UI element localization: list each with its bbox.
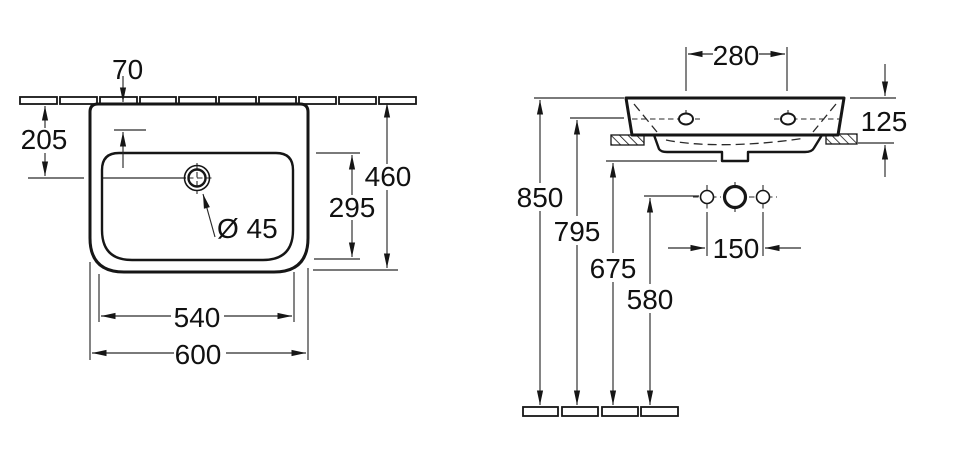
front-view: 70 205 460 295 [20, 54, 416, 370]
drawing-canvas: 70 205 460 295 [0, 0, 960, 459]
dim-apron-height: 125 [850, 64, 907, 177]
dim-top-to-tap-center: 205 [21, 106, 84, 178]
basin-side-outline [626, 98, 844, 135]
dim-label-150: 150 [713, 233, 760, 264]
dim-overall-height: 460 [313, 103, 411, 270]
dim-label-795: 795 [554, 216, 601, 247]
dim-supply-height: 580 [627, 198, 674, 405]
dim-rim-height: 850 [517, 100, 564, 405]
dim-supply-spacing: 150 [668, 212, 801, 264]
dim-label-125: 125 [861, 106, 908, 137]
dim-bowl-width: 540 [99, 272, 294, 333]
dim-label-600: 600 [175, 339, 222, 370]
dim-label-460: 460 [365, 161, 412, 192]
connection-holes [693, 182, 777, 212]
dim-fixing-spacing: 280 [686, 40, 787, 91]
dim-label-295: 295 [329, 192, 376, 223]
dim-label-280: 280 [713, 40, 760, 71]
dim-label-d45: Ø 45 [217, 213, 278, 244]
side-view: 280 125 850 795 675 580 [517, 40, 908, 416]
technical-drawing: 70 205 460 295 [0, 0, 960, 459]
floor-tile-strip [523, 407, 678, 416]
dim-label-675: 675 [590, 253, 637, 284]
dim-label-540: 540 [174, 302, 221, 333]
dim-label-850: 850 [517, 182, 564, 213]
dim-label-580: 580 [627, 284, 674, 315]
dim-label-205: 205 [21, 124, 68, 155]
dim-label-70: 70 [112, 54, 143, 85]
